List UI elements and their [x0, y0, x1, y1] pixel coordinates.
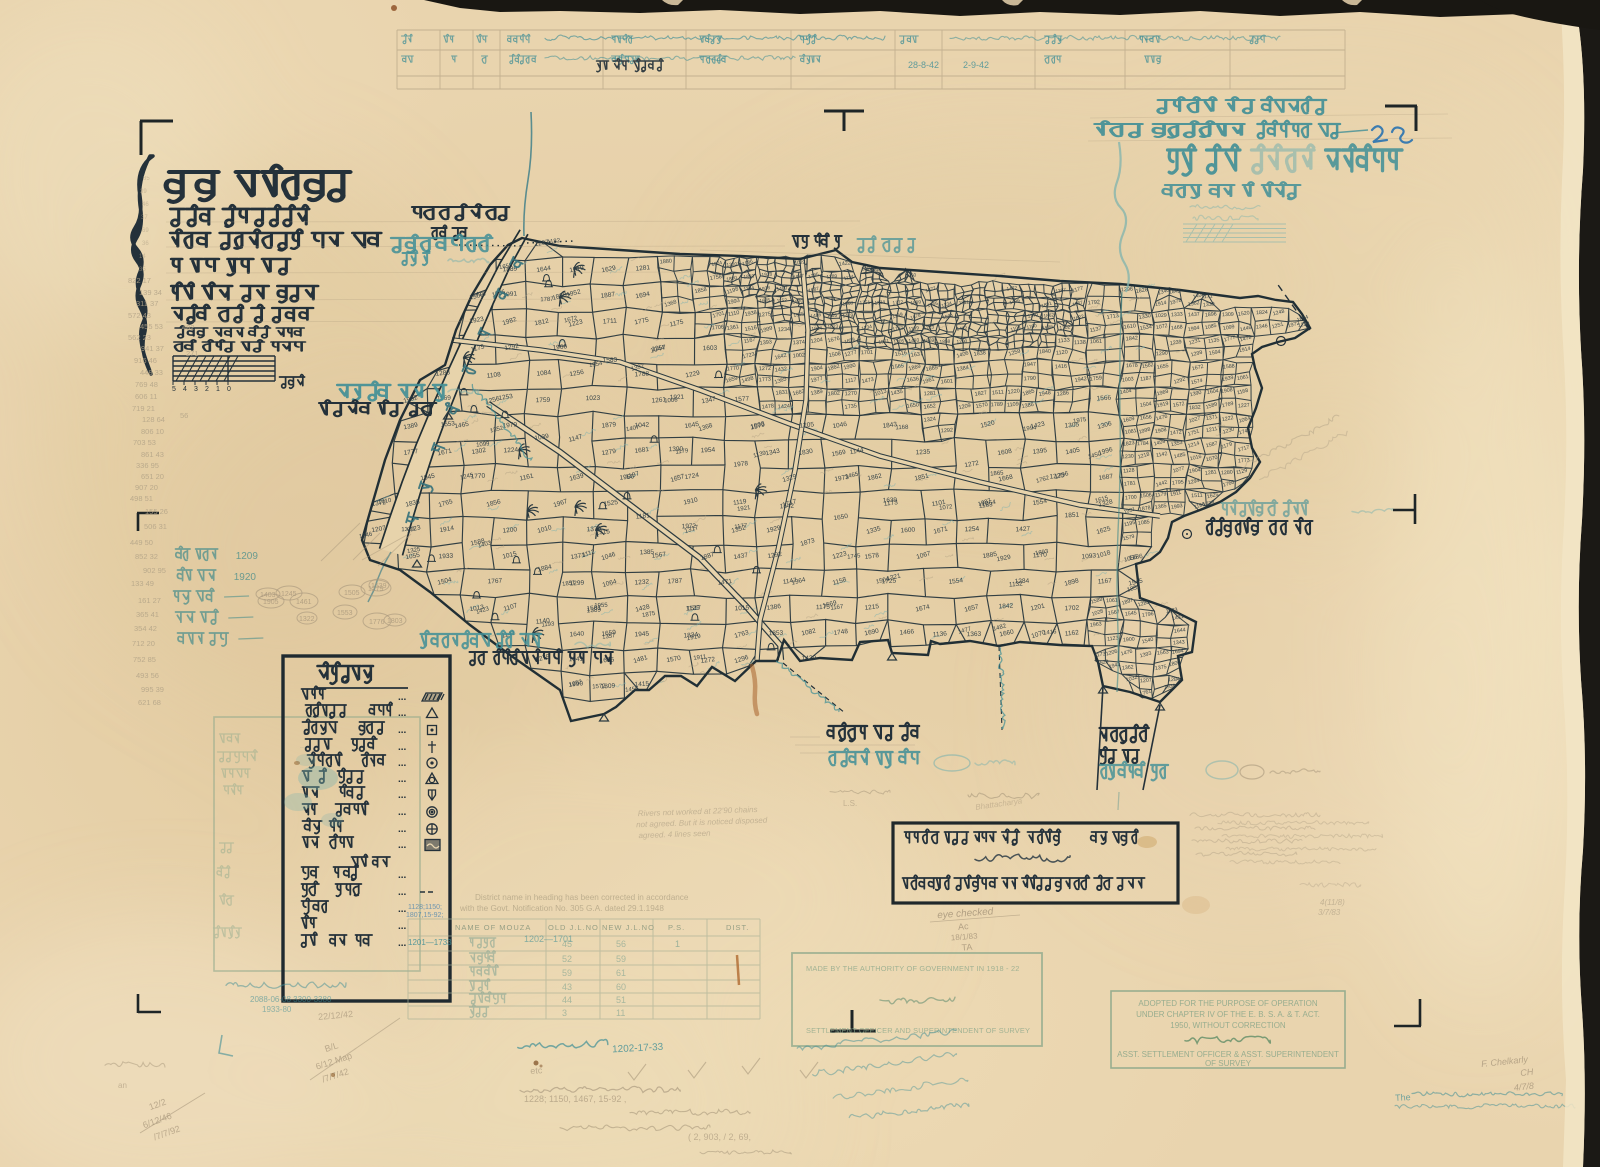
svg-text:1201—1733: 1201—1733 — [408, 938, 452, 947]
svg-text:1347: 1347 — [701, 396, 717, 406]
svg-text:1424: 1424 — [778, 404, 791, 411]
svg-text:822 17: 822 17 — [128, 276, 151, 285]
svg-text:311 37: 311 37 — [136, 299, 158, 308]
svg-text:1636: 1636 — [906, 376, 919, 383]
svg-text:1671: 1671 — [933, 525, 949, 535]
svg-text:1511: 1511 — [1191, 493, 1203, 500]
svg-text:1851: 1851 — [1065, 512, 1080, 520]
svg-text:1639: 1639 — [883, 497, 898, 505]
svg-text:1365: 1365 — [1154, 503, 1167, 511]
svg-text:1588: 1588 — [1223, 363, 1235, 370]
svg-text:448 33: 448 33 — [140, 368, 163, 377]
svg-text:1311: 1311 — [959, 300, 970, 307]
svg-text:1422: 1422 — [956, 326, 967, 333]
svg-text:1787: 1787 — [540, 297, 554, 303]
svg-text:NAME OF MOUZA: NAME OF MOUZA — [455, 923, 531, 932]
svg-text:1694: 1694 — [635, 291, 651, 301]
svg-text:1776: 1776 — [369, 619, 385, 626]
svg-text:ASST. SETTLEMENT OFFICER & ASS: ASST. SETTLEMENT OFFICER & ASST. SUPERIN… — [1117, 1050, 1339, 1059]
svg-text:139 34: 139 34 — [139, 288, 162, 297]
svg-text:F. Chelkarly: F. Chelkarly — [1481, 1054, 1529, 1069]
svg-text:902 95: 902 95 — [143, 566, 166, 575]
svg-text:1788: 1788 — [634, 370, 649, 378]
svg-text:The: The — [1395, 1092, 1411, 1103]
svg-text:1542: 1542 — [780, 503, 795, 511]
svg-text:1870: 1870 — [792, 299, 803, 306]
svg-text:35: 35 — [139, 267, 146, 273]
svg-text:1929: 1929 — [996, 554, 1012, 564]
svg-text:155 26: 155 26 — [145, 507, 168, 516]
svg-text:1511: 1511 — [992, 389, 1004, 396]
svg-text:1105: 1105 — [827, 313, 838, 320]
svg-text:1175: 1175 — [669, 318, 685, 328]
svg-text:( 2, 903, / 2, 69,: ( 2, 903, / 2, 69, — [688, 1132, 751, 1142]
svg-text:493 56: 493 56 — [136, 671, 159, 680]
svg-text:56: 56 — [616, 939, 626, 949]
svg-text:1640: 1640 — [569, 630, 584, 638]
svg-text:1947: 1947 — [1024, 362, 1037, 369]
svg-text:1472: 1472 — [1170, 429, 1182, 436]
svg-text:1195: 1195 — [1124, 520, 1137, 529]
svg-text:1700: 1700 — [1125, 494, 1137, 501]
svg-text:59: 59 — [562, 968, 572, 978]
svg-text:1669: 1669 — [923, 338, 934, 345]
svg-text:1362: 1362 — [1122, 664, 1134, 671]
svg-text:1878: 1878 — [1139, 505, 1152, 513]
svg-text:36: 36 — [142, 241, 149, 247]
svg-text:60: 60 — [616, 982, 626, 992]
svg-text:941 37: 941 37 — [141, 344, 164, 353]
svg-text:5: 5 — [172, 386, 176, 393]
svg-text:1061: 1061 — [1090, 339, 1102, 345]
svg-text:...: ... — [398, 708, 407, 719]
svg-text:2088-06-08 3300-3380: 2088-06-08 3300-3380 — [250, 995, 332, 1004]
svg-text:651 20: 651 20 — [141, 472, 164, 481]
svg-text:336 95: 336 95 — [136, 461, 159, 470]
svg-text:1505: 1505 — [344, 590, 360, 597]
svg-text:1220: 1220 — [726, 261, 738, 268]
svg-text:1292: 1292 — [941, 428, 954, 435]
svg-text:1702: 1702 — [1065, 605, 1080, 613]
svg-text:OF SURVEY: OF SURVEY — [1205, 1059, 1252, 1068]
svg-text:1570: 1570 — [666, 655, 682, 664]
svg-text:1795: 1795 — [1172, 479, 1184, 486]
svg-text:1933-80: 1933-80 — [262, 1005, 292, 1014]
svg-text:1416: 1416 — [1055, 364, 1068, 371]
svg-text:852 32: 852 32 — [135, 552, 158, 561]
svg-text:4/7/8: 4/7/8 — [1513, 1081, 1534, 1093]
svg-text:1978: 1978 — [733, 460, 748, 469]
svg-text:1437: 1437 — [733, 552, 749, 561]
svg-text:1270: 1270 — [845, 391, 858, 398]
svg-text:1885: 1885 — [982, 551, 998, 560]
svg-text:1281: 1281 — [924, 391, 937, 398]
svg-text:1773: 1773 — [1238, 457, 1250, 464]
svg-text:...: ... — [398, 692, 407, 703]
svg-text:1824: 1824 — [1256, 310, 1268, 316]
svg-text:1419: 1419 — [842, 313, 853, 320]
svg-text:1072: 1072 — [939, 504, 954, 511]
svg-text:1553: 1553 — [337, 610, 353, 617]
svg-text:1305: 1305 — [893, 339, 904, 346]
svg-text:1920: 1920 — [234, 572, 257, 583]
svg-text:1193: 1193 — [541, 621, 555, 628]
svg-text:1354: 1354 — [589, 361, 604, 369]
svg-text:562 23: 562 23 — [128, 333, 151, 342]
svg-text:1880: 1880 — [660, 258, 673, 265]
svg-text:1993: 1993 — [1171, 503, 1184, 511]
svg-text:1751: 1751 — [859, 300, 870, 307]
svg-text:1812: 1812 — [534, 318, 550, 328]
svg-text:1281: 1281 — [635, 264, 650, 273]
svg-text:1343: 1343 — [1173, 639, 1185, 646]
svg-text:1896: 1896 — [1205, 311, 1217, 318]
svg-text:3/7/83: 3/7/83 — [1318, 908, 1341, 917]
svg-text:1386: 1386 — [766, 603, 782, 612]
svg-text:OLD J.L.NO: OLD J.L.NO — [548, 923, 599, 932]
svg-text:1368: 1368 — [664, 299, 678, 308]
svg-text:...: ... — [398, 938, 407, 949]
svg-text:1578: 1578 — [864, 552, 880, 561]
svg-text:1403: 1403 — [260, 592, 276, 599]
svg-text:11: 11 — [616, 1008, 625, 1018]
svg-text:1842: 1842 — [1126, 335, 1139, 342]
svg-text:1335: 1335 — [866, 525, 882, 536]
svg-text:1629: 1629 — [601, 265, 617, 275]
svg-text:1128;1150;: 1128;1150; — [408, 904, 442, 911]
svg-text:with the Govt. Notification No: with the Govt. Notification No. 305 G.A.… — [459, 904, 664, 913]
svg-text:1084: 1084 — [536, 369, 551, 378]
svg-text:1773: 1773 — [759, 376, 772, 383]
svg-text:39: 39 — [140, 189, 147, 195]
svg-text:2: 2 — [205, 386, 209, 393]
svg-text:MADE BY THE AUTHORITY OF GOVER: MADE BY THE AUTHORITY OF GOVERNMENT IN 1… — [806, 964, 1020, 973]
svg-text:1187: 1187 — [1140, 375, 1152, 382]
svg-text:1506: 1506 — [1140, 492, 1152, 499]
svg-text:1286: 1286 — [1056, 390, 1069, 397]
svg-text:1577: 1577 — [734, 395, 749, 403]
svg-text:1603: 1603 — [703, 345, 718, 353]
svg-text:1893: 1893 — [743, 273, 755, 280]
svg-text:1339: 1339 — [1203, 301, 1215, 308]
svg-text:1223: 1223 — [832, 550, 848, 561]
svg-text:P.S.: P.S. — [668, 923, 685, 932]
svg-text:1257: 1257 — [651, 344, 667, 353]
svg-text:1865: 1865 — [990, 470, 1004, 477]
svg-text:1887: 1887 — [600, 291, 616, 300]
svg-text:1792: 1792 — [1088, 299, 1101, 306]
svg-text:...: ... — [398, 921, 407, 932]
svg-text:1245: 1245 — [281, 591, 297, 598]
svg-text:4: 4 — [183, 386, 187, 393]
svg-text:1921: 1921 — [670, 394, 685, 402]
svg-text:SETTLEMENT OFFICER AND SUPERIN: SETTLEMENT OFFICER AND SUPERINTENDENT OF… — [806, 1026, 1030, 1035]
svg-text:128 64: 128 64 — [142, 415, 165, 424]
svg-text:1229: 1229 — [685, 370, 701, 380]
svg-text:1179: 1179 — [1155, 491, 1167, 499]
svg-text:1466: 1466 — [899, 628, 914, 636]
svg-text:1625: 1625 — [1096, 525, 1112, 536]
svg-text:482: 482 — [182, 323, 195, 332]
svg-text:161 27: 161 27 — [138, 596, 161, 605]
svg-text:1657: 1657 — [964, 603, 980, 614]
svg-text:1681: 1681 — [634, 446, 650, 455]
svg-text:1644: 1644 — [536, 265, 552, 274]
svg-text:1132: 1132 — [1009, 580, 1024, 588]
svg-text:1706: 1706 — [712, 325, 725, 332]
svg-text:271: 271 — [186, 349, 199, 358]
svg-text:1281: 1281 — [1205, 469, 1218, 477]
svg-text:1775: 1775 — [634, 317, 650, 327]
svg-text:1601: 1601 — [941, 378, 954, 385]
svg-text:44: 44 — [562, 995, 572, 1005]
svg-text:1085: 1085 — [1138, 519, 1151, 527]
svg-text:1437: 1437 — [1188, 312, 1200, 319]
svg-text:Ac: Ac — [958, 921, 970, 932]
svg-text:1416: 1416 — [472, 292, 486, 299]
svg-text:1572: 1572 — [592, 683, 606, 690]
svg-text:CH: CH — [1520, 1067, 1534, 1078]
svg-text:1322: 1322 — [299, 616, 315, 623]
svg-text:1711: 1711 — [603, 317, 618, 325]
svg-text:1685: 1685 — [759, 297, 771, 304]
svg-text:907 20: 907 20 — [135, 483, 158, 492]
svg-text:1082: 1082 — [801, 628, 817, 638]
svg-text:1385: 1385 — [640, 549, 655, 557]
svg-text:1183: 1183 — [979, 501, 994, 510]
svg-text:1784: 1784 — [1137, 441, 1149, 448]
svg-text:1600: 1600 — [900, 526, 915, 534]
svg-text:1966: 1966 — [552, 343, 567, 351]
svg-text:354 42: 354 42 — [134, 624, 157, 633]
svg-text:1919: 1919 — [686, 633, 702, 643]
svg-text:1554: 1554 — [1032, 498, 1048, 507]
svg-text:1077: 1077 — [1172, 466, 1185, 475]
svg-text:1950, WITHOUT CORRECTION: 1950, WITHOUT CORRECTION — [1170, 1021, 1286, 1030]
svg-text:1858: 1858 — [939, 339, 950, 346]
svg-text:...: ... — [398, 774, 407, 785]
svg-text:NEW J.L.NO: NEW J.L.NO — [602, 923, 655, 932]
svg-text:...: ... — [398, 790, 407, 801]
svg-text:56: 56 — [180, 411, 188, 420]
svg-text:...: ... — [398, 758, 407, 769]
svg-text:1832: 1832 — [1189, 405, 1201, 412]
svg-text:1952: 1952 — [566, 288, 582, 298]
svg-text:1407: 1407 — [626, 425, 641, 434]
svg-text:1583: 1583 — [603, 357, 618, 365]
svg-text:1016: 1016 — [1189, 454, 1202, 463]
svg-text:1429: 1429 — [802, 655, 817, 663]
svg-text:1015: 1015 — [735, 605, 750, 613]
svg-text:3: 3 — [194, 386, 198, 393]
svg-text:1790: 1790 — [1024, 376, 1037, 383]
svg-text:1933: 1933 — [439, 553, 454, 561]
svg-text:1701: 1701 — [861, 350, 873, 356]
svg-text:L.S.: L.S. — [843, 799, 857, 808]
svg-text:1442: 1442 — [1155, 479, 1168, 488]
svg-text:1456: 1456 — [625, 686, 640, 693]
svg-text:37: 37 — [141, 215, 148, 221]
svg-text:46: 46 — [142, 202, 149, 208]
svg-text:1: 1 — [675, 939, 680, 949]
svg-text:...: ... — [398, 742, 407, 753]
svg-text:1280: 1280 — [1221, 470, 1233, 477]
svg-text:1162: 1162 — [1065, 629, 1080, 637]
svg-text:606 11: 606 11 — [135, 392, 157, 401]
svg-text:...: ... — [398, 824, 407, 835]
svg-text:1807,15-92;: 1807,15-92; — [406, 912, 443, 919]
svg-text:365 41: 365 41 — [136, 610, 159, 619]
svg-text:1235: 1235 — [916, 449, 931, 457]
svg-text:1029: 1029 — [794, 260, 805, 267]
svg-text:1910: 1910 — [683, 496, 699, 506]
svg-text:1427: 1427 — [1015, 525, 1030, 533]
svg-text:1292: 1292 — [504, 343, 520, 352]
svg-text:1061: 1061 — [1106, 598, 1118, 605]
svg-text:1093: 1093 — [1081, 552, 1096, 560]
svg-text:1842: 1842 — [1169, 288, 1181, 295]
svg-text:1517: 1517 — [687, 604, 702, 612]
svg-text:1284: 1284 — [1168, 677, 1180, 683]
svg-text:1914: 1914 — [811, 325, 823, 332]
svg-text:1928: 1928 — [761, 272, 772, 279]
svg-text:43: 43 — [562, 982, 572, 992]
svg-text:916 46: 916 46 — [134, 356, 157, 365]
svg-text:1067: 1067 — [916, 550, 932, 561]
svg-text:1950: 1950 — [905, 273, 916, 280]
svg-text:28-8-42: 28-8-42 — [908, 60, 939, 70]
svg-text:1921: 1921 — [737, 505, 752, 513]
svg-text:1343: 1343 — [765, 448, 781, 458]
svg-text:1228; 1150, 1467, 15-92 ,: 1228; 1150, 1467, 15-92 , — [524, 1094, 626, 1104]
svg-text:1256: 1256 — [569, 369, 585, 378]
svg-text:ADOPTED FOR THE PURPOSE OF OPE: ADOPTED FOR THE PURPOSE OF OPERATION — [1138, 999, 1318, 1008]
svg-text:1168: 1168 — [895, 425, 909, 432]
svg-text:1461: 1461 — [296, 599, 312, 606]
svg-text:1177: 1177 — [734, 523, 748, 531]
svg-text:1478: 1478 — [761, 403, 774, 410]
svg-text:1152: 1152 — [776, 297, 787, 304]
svg-text:1289: 1289 — [826, 273, 838, 280]
svg-text:4(11/8): 4(11/8) — [1320, 898, 1345, 907]
svg-text:1678: 1678 — [1126, 363, 1138, 370]
svg-text:an: an — [118, 1081, 127, 1090]
svg-text:1234: 1234 — [778, 327, 790, 333]
svg-text:1766: 1766 — [1222, 479, 1235, 488]
svg-text:1374: 1374 — [793, 340, 806, 347]
svg-text:1900: 1900 — [1123, 636, 1135, 643]
svg-text:1416: 1416 — [1043, 629, 1058, 636]
svg-text:1789: 1789 — [991, 402, 1004, 409]
svg-text:1674: 1674 — [915, 603, 931, 613]
svg-text:1657: 1657 — [670, 473, 686, 484]
svg-text:1904: 1904 — [1189, 467, 1202, 475]
svg-text:...: ... — [398, 725, 407, 736]
svg-text:1911: 1911 — [1170, 490, 1183, 498]
svg-text:1717: 1717 — [1237, 445, 1250, 454]
svg-text:1279: 1279 — [368, 586, 384, 593]
svg-text:1693: 1693 — [1035, 549, 1050, 557]
svg-text:1070: 1070 — [1205, 455, 1218, 463]
svg-text:1129: 1129 — [1236, 468, 1249, 476]
svg-text:1566: 1566 — [1096, 394, 1111, 402]
svg-text:1772: 1772 — [892, 300, 903, 307]
svg-text:Bhattacharya: Bhattacharya — [975, 796, 1023, 812]
svg-text:1292: 1292 — [767, 551, 783, 560]
svg-text:1637: 1637 — [910, 351, 923, 358]
svg-text:1763: 1763 — [734, 629, 750, 640]
svg-text:1109: 1109 — [1007, 401, 1019, 408]
svg-text:449 50: 449 50 — [130, 538, 153, 547]
svg-text:1972: 1972 — [682, 523, 697, 531]
svg-text:1787: 1787 — [668, 578, 683, 586]
svg-text:1745: 1745 — [847, 553, 862, 560]
svg-text:506 31: 506 31 — [144, 522, 167, 531]
svg-text:1227: 1227 — [1238, 402, 1250, 409]
svg-text:1333: 1333 — [1171, 312, 1183, 319]
svg-text:51: 51 — [616, 995, 626, 1005]
svg-text:806 10: 806 10 — [141, 427, 164, 436]
svg-text:1181: 1181 — [636, 512, 651, 520]
svg-text:1389: 1389 — [587, 606, 602, 614]
svg-text:1702: 1702 — [1059, 324, 1071, 331]
svg-text:1179: 1179 — [675, 448, 689, 456]
svg-text:1: 1 — [216, 386, 220, 393]
svg-text:...: ... — [398, 887, 407, 898]
svg-text:1432: 1432 — [774, 366, 787, 373]
svg-text:752 85: 752 85 — [133, 655, 156, 664]
svg-text:1329: 1329 — [401, 527, 415, 533]
svg-text:1554: 1554 — [948, 577, 964, 586]
svg-text:719 21: 719 21 — [132, 404, 155, 413]
svg-text:1853: 1853 — [769, 630, 784, 638]
svg-text:1230: 1230 — [1122, 454, 1134, 461]
svg-text:1519: 1519 — [569, 265, 585, 275]
svg-text:52: 52 — [562, 954, 572, 964]
svg-text:1138: 1138 — [1074, 340, 1086, 347]
svg-text:1767: 1767 — [488, 578, 503, 586]
svg-text:1954: 1954 — [701, 447, 716, 455]
svg-text:1207: 1207 — [1140, 678, 1152, 685]
svg-text:498 51: 498 51 — [130, 494, 153, 503]
svg-text:...: ... — [398, 807, 407, 818]
svg-text:1272: 1272 — [759, 366, 771, 372]
svg-text:1171: 1171 — [1201, 294, 1213, 301]
svg-text:...: ... — [398, 840, 407, 851]
svg-text:861 43: 861 43 — [141, 450, 164, 459]
svg-text:1275: 1275 — [758, 311, 771, 318]
svg-text:59: 59 — [616, 954, 626, 964]
svg-text:35: 35 — [143, 176, 150, 182]
svg-text:995 39: 995 39 — [141, 685, 164, 694]
svg-text:1493: 1493 — [908, 337, 920, 344]
svg-text:1224: 1224 — [503, 446, 518, 454]
svg-text:1023: 1023 — [586, 395, 601, 403]
svg-text:1748: 1748 — [833, 628, 849, 637]
svg-text:TA: TA — [961, 942, 973, 953]
svg-text:1309: 1309 — [1222, 312, 1234, 319]
svg-text:1128: 1128 — [1123, 467, 1135, 474]
svg-text:45: 45 — [562, 939, 572, 949]
svg-text:1120: 1120 — [1056, 349, 1068, 356]
svg-text:1656: 1656 — [1140, 414, 1152, 421]
svg-text:0: 0 — [227, 386, 231, 393]
svg-text:1158: 1158 — [832, 576, 848, 587]
svg-text:1254: 1254 — [965, 526, 980, 534]
svg-text:1201: 1201 — [1030, 602, 1046, 612]
svg-text:1029: 1029 — [1155, 313, 1167, 320]
svg-text:18/1/83: 18/1/83 — [951, 931, 979, 942]
